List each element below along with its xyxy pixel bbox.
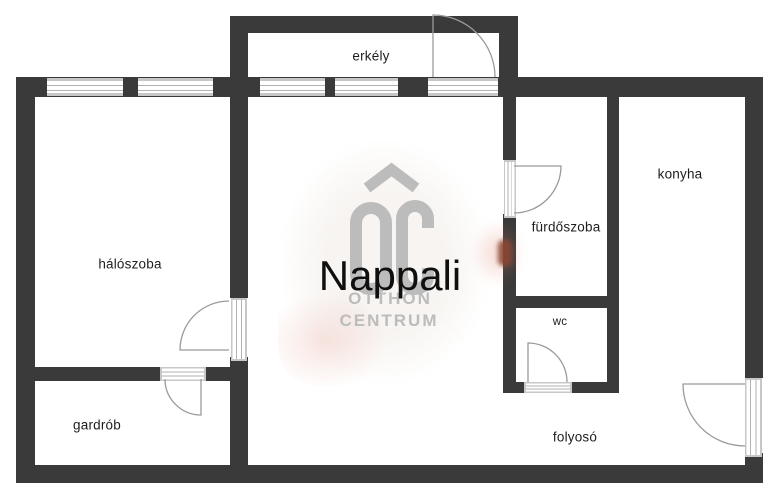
room-label-folyoso: folyosó — [553, 430, 597, 445]
watermark-line-centrum: CENTRUM — [340, 311, 439, 331]
room-label-haloszoba: hálószoba — [98, 257, 161, 272]
entrance-door-arc — [683, 384, 745, 446]
bathroom-door-arc — [514, 166, 561, 213]
bedroom-door-arc — [180, 301, 229, 350]
roof-chevron-icon — [367, 170, 416, 189]
room-label-wc: wc — [553, 316, 567, 328]
wc-door-arc — [528, 343, 567, 382]
wall-smudge — [498, 240, 512, 266]
room-label-konyha: konyha — [658, 167, 703, 182]
room-label-nappali: Nappali — [319, 252, 461, 300]
room-label-furdoszoba: fürdőszoba — [532, 220, 601, 235]
wardrobe-door-arc — [165, 379, 201, 415]
floorplan-canvas: OTTHON CENTRUM erkély hálószoba Nappali … — [0, 0, 779, 500]
room-label-erkely: erkély — [352, 49, 389, 64]
balcony-door-arc — [433, 15, 495, 77]
room-label-gardrob: gardrób — [73, 418, 121, 433]
